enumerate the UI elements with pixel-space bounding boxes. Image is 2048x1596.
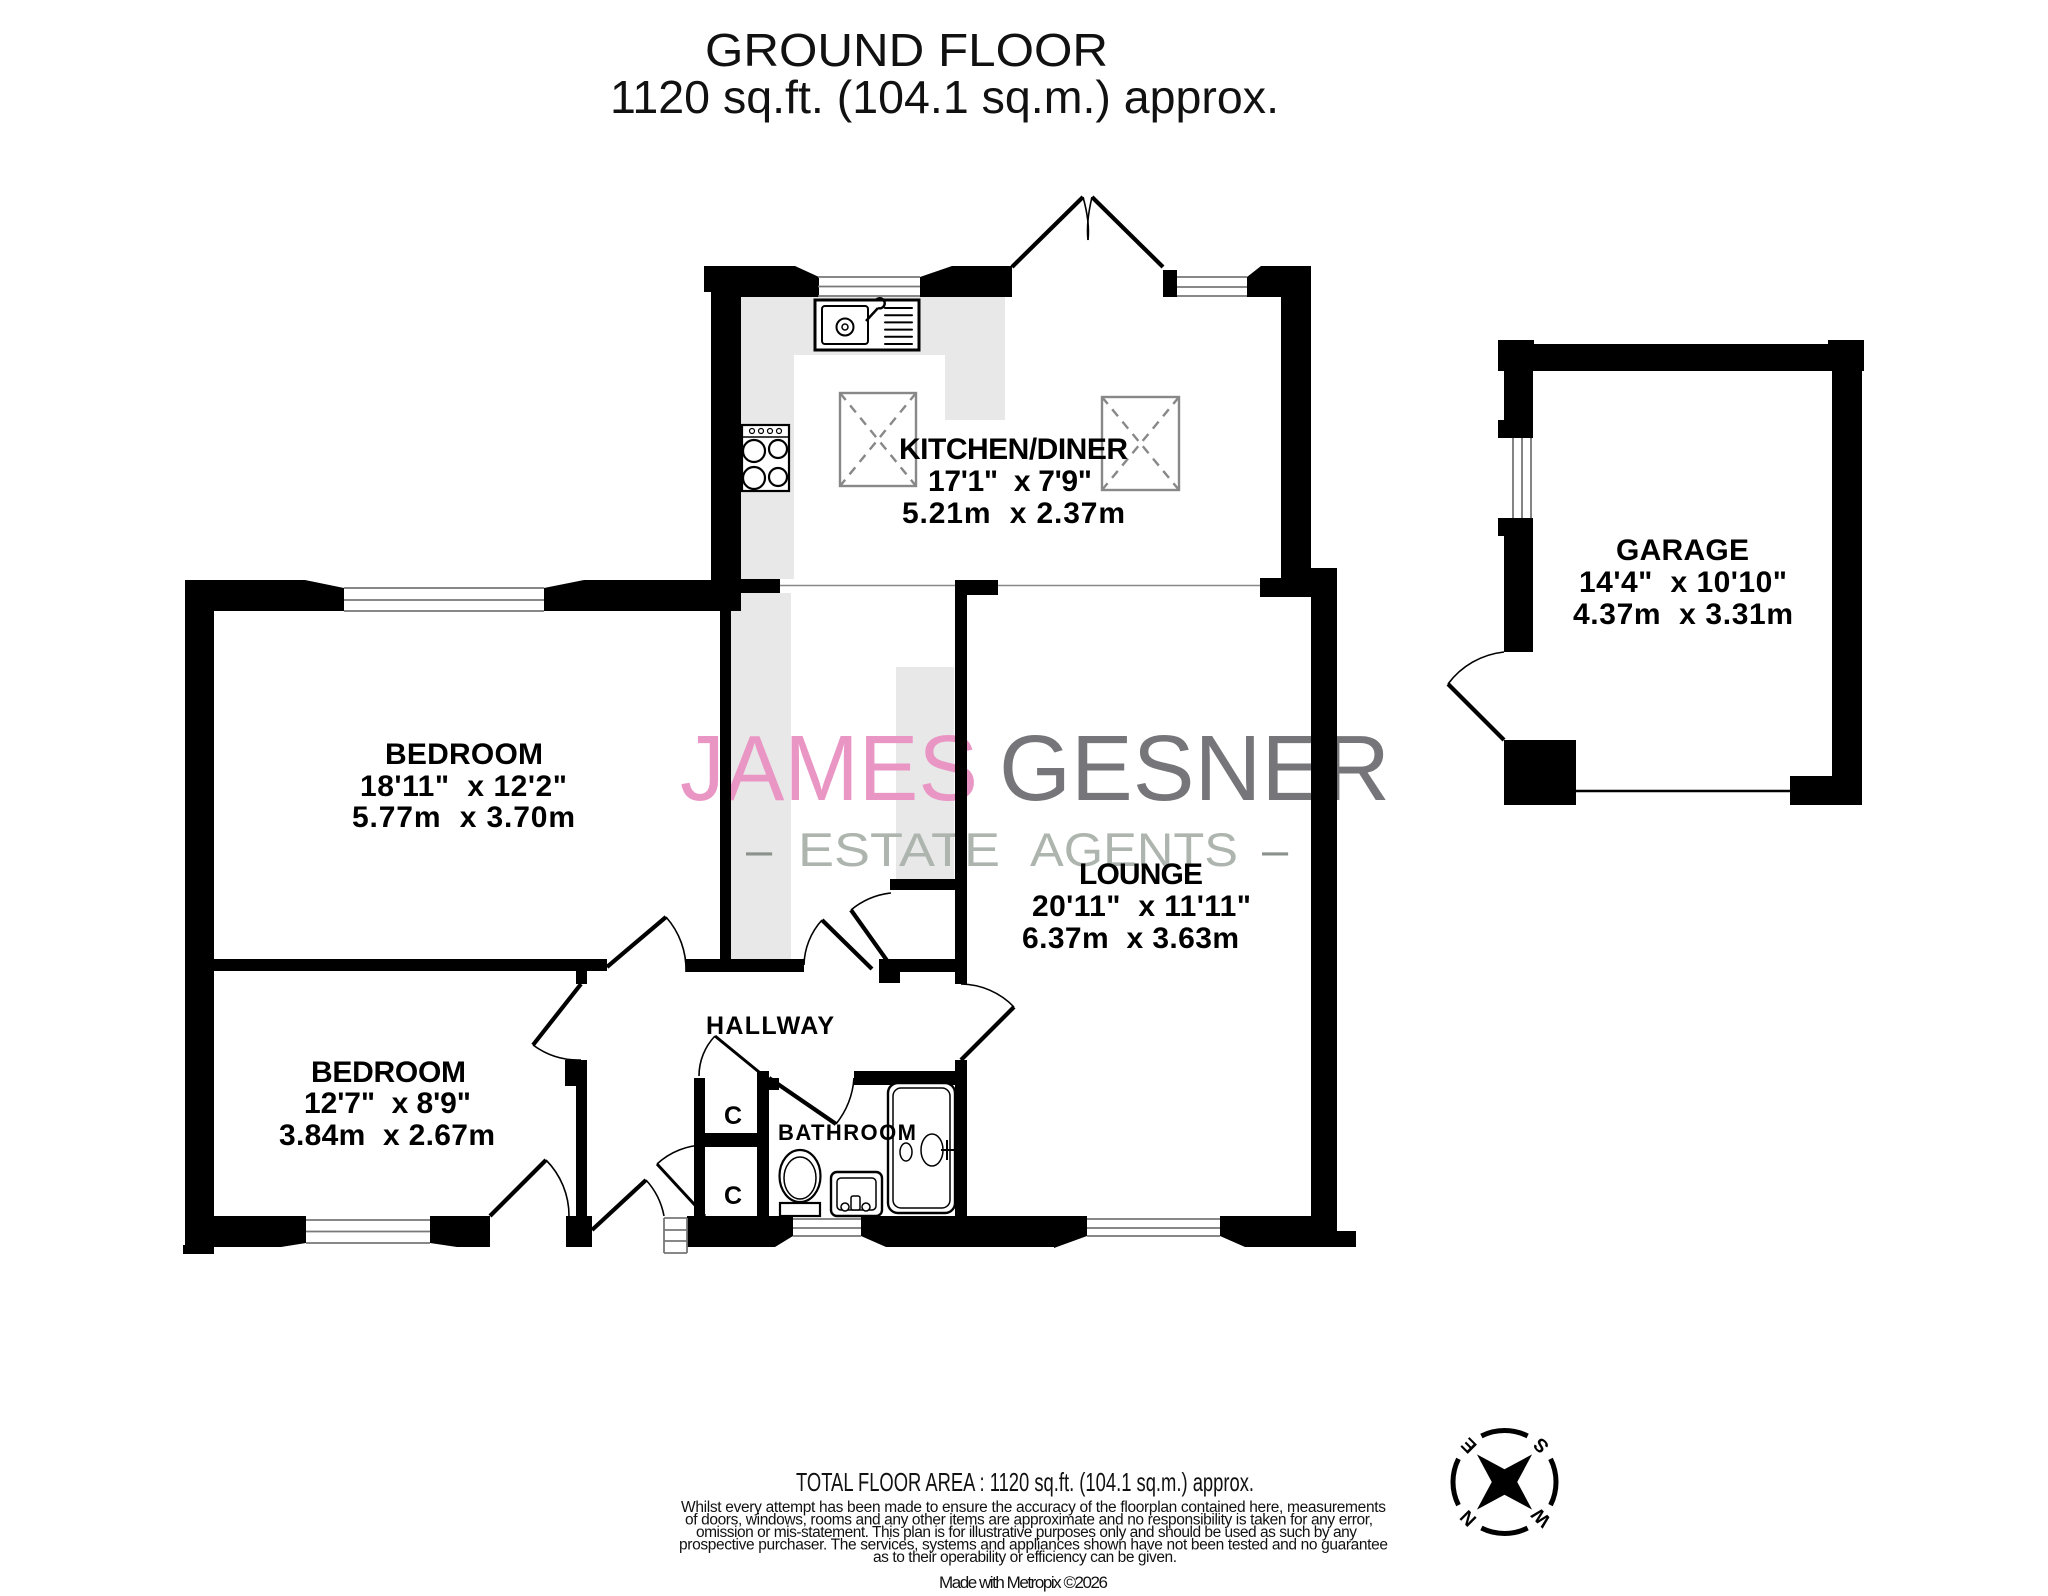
svg-text:1120 sq.ft. (104.1 sq.m.) appr: 1120 sq.ft. (104.1 sq.m.) approx. (610, 71, 1279, 123)
svg-text:4.37m x 3.31m: 4.37m x 3.31m (1573, 598, 1793, 631)
svg-text:C: C (724, 1182, 742, 1210)
svg-text:12'7" x 8'9": 12'7" x 8'9" (304, 1087, 471, 1120)
svg-text:BEDROOM: BEDROOM (311, 1056, 466, 1089)
svg-text:5.77m x 3.70m: 5.77m x 3.70m (352, 801, 575, 834)
svg-text:KITCHEN/DINER: KITCHEN/DINER (899, 433, 1128, 466)
svg-text:BEDROOM: BEDROOM (385, 738, 543, 771)
svg-text:17'1" x 7'9": 17'1" x 7'9" (928, 465, 1092, 498)
svg-text:5.21m x 2.37m: 5.21m x 2.37m (902, 497, 1125, 530)
svg-text:3.84m x 2.67m: 3.84m x 2.67m (279, 1119, 495, 1152)
svg-text:6.37m x 3.63m: 6.37m x 3.63m (1022, 922, 1239, 955)
svg-text:GROUND FLOOR: GROUND FLOOR (705, 24, 1108, 76)
svg-text:20'11" x 11'11": 20'11" x 11'11" (1032, 890, 1251, 923)
svg-text:as to their operability or eff: as to their operability or efficiency ca… (873, 1549, 1177, 1566)
svg-text:BATHROOM: BATHROOM (778, 1120, 916, 1145)
svg-text:Made with Metropix ©2026: Made with Metropix ©2026 (939, 1573, 1108, 1592)
svg-text:LOUNGE: LOUNGE (1079, 858, 1203, 891)
svg-text:TOTAL FLOOR AREA : 1120 sq.ft.: TOTAL FLOOR AREA : 1120 sq.ft. (104.1 sq… (796, 1467, 1254, 1497)
svg-text:–: – (1262, 823, 1289, 876)
svg-text:14'4" x 10'10": 14'4" x 10'10" (1579, 566, 1787, 599)
svg-text:C: C (724, 1102, 742, 1130)
svg-text:ESTATE: ESTATE (798, 823, 1000, 876)
svg-text:GARAGE: GARAGE (1616, 534, 1749, 567)
svg-text:18'11" x 12'2": 18'11" x 12'2" (360, 770, 567, 803)
svg-text:–: – (746, 823, 773, 876)
svg-text:HALLWAY: HALLWAY (706, 1012, 834, 1040)
